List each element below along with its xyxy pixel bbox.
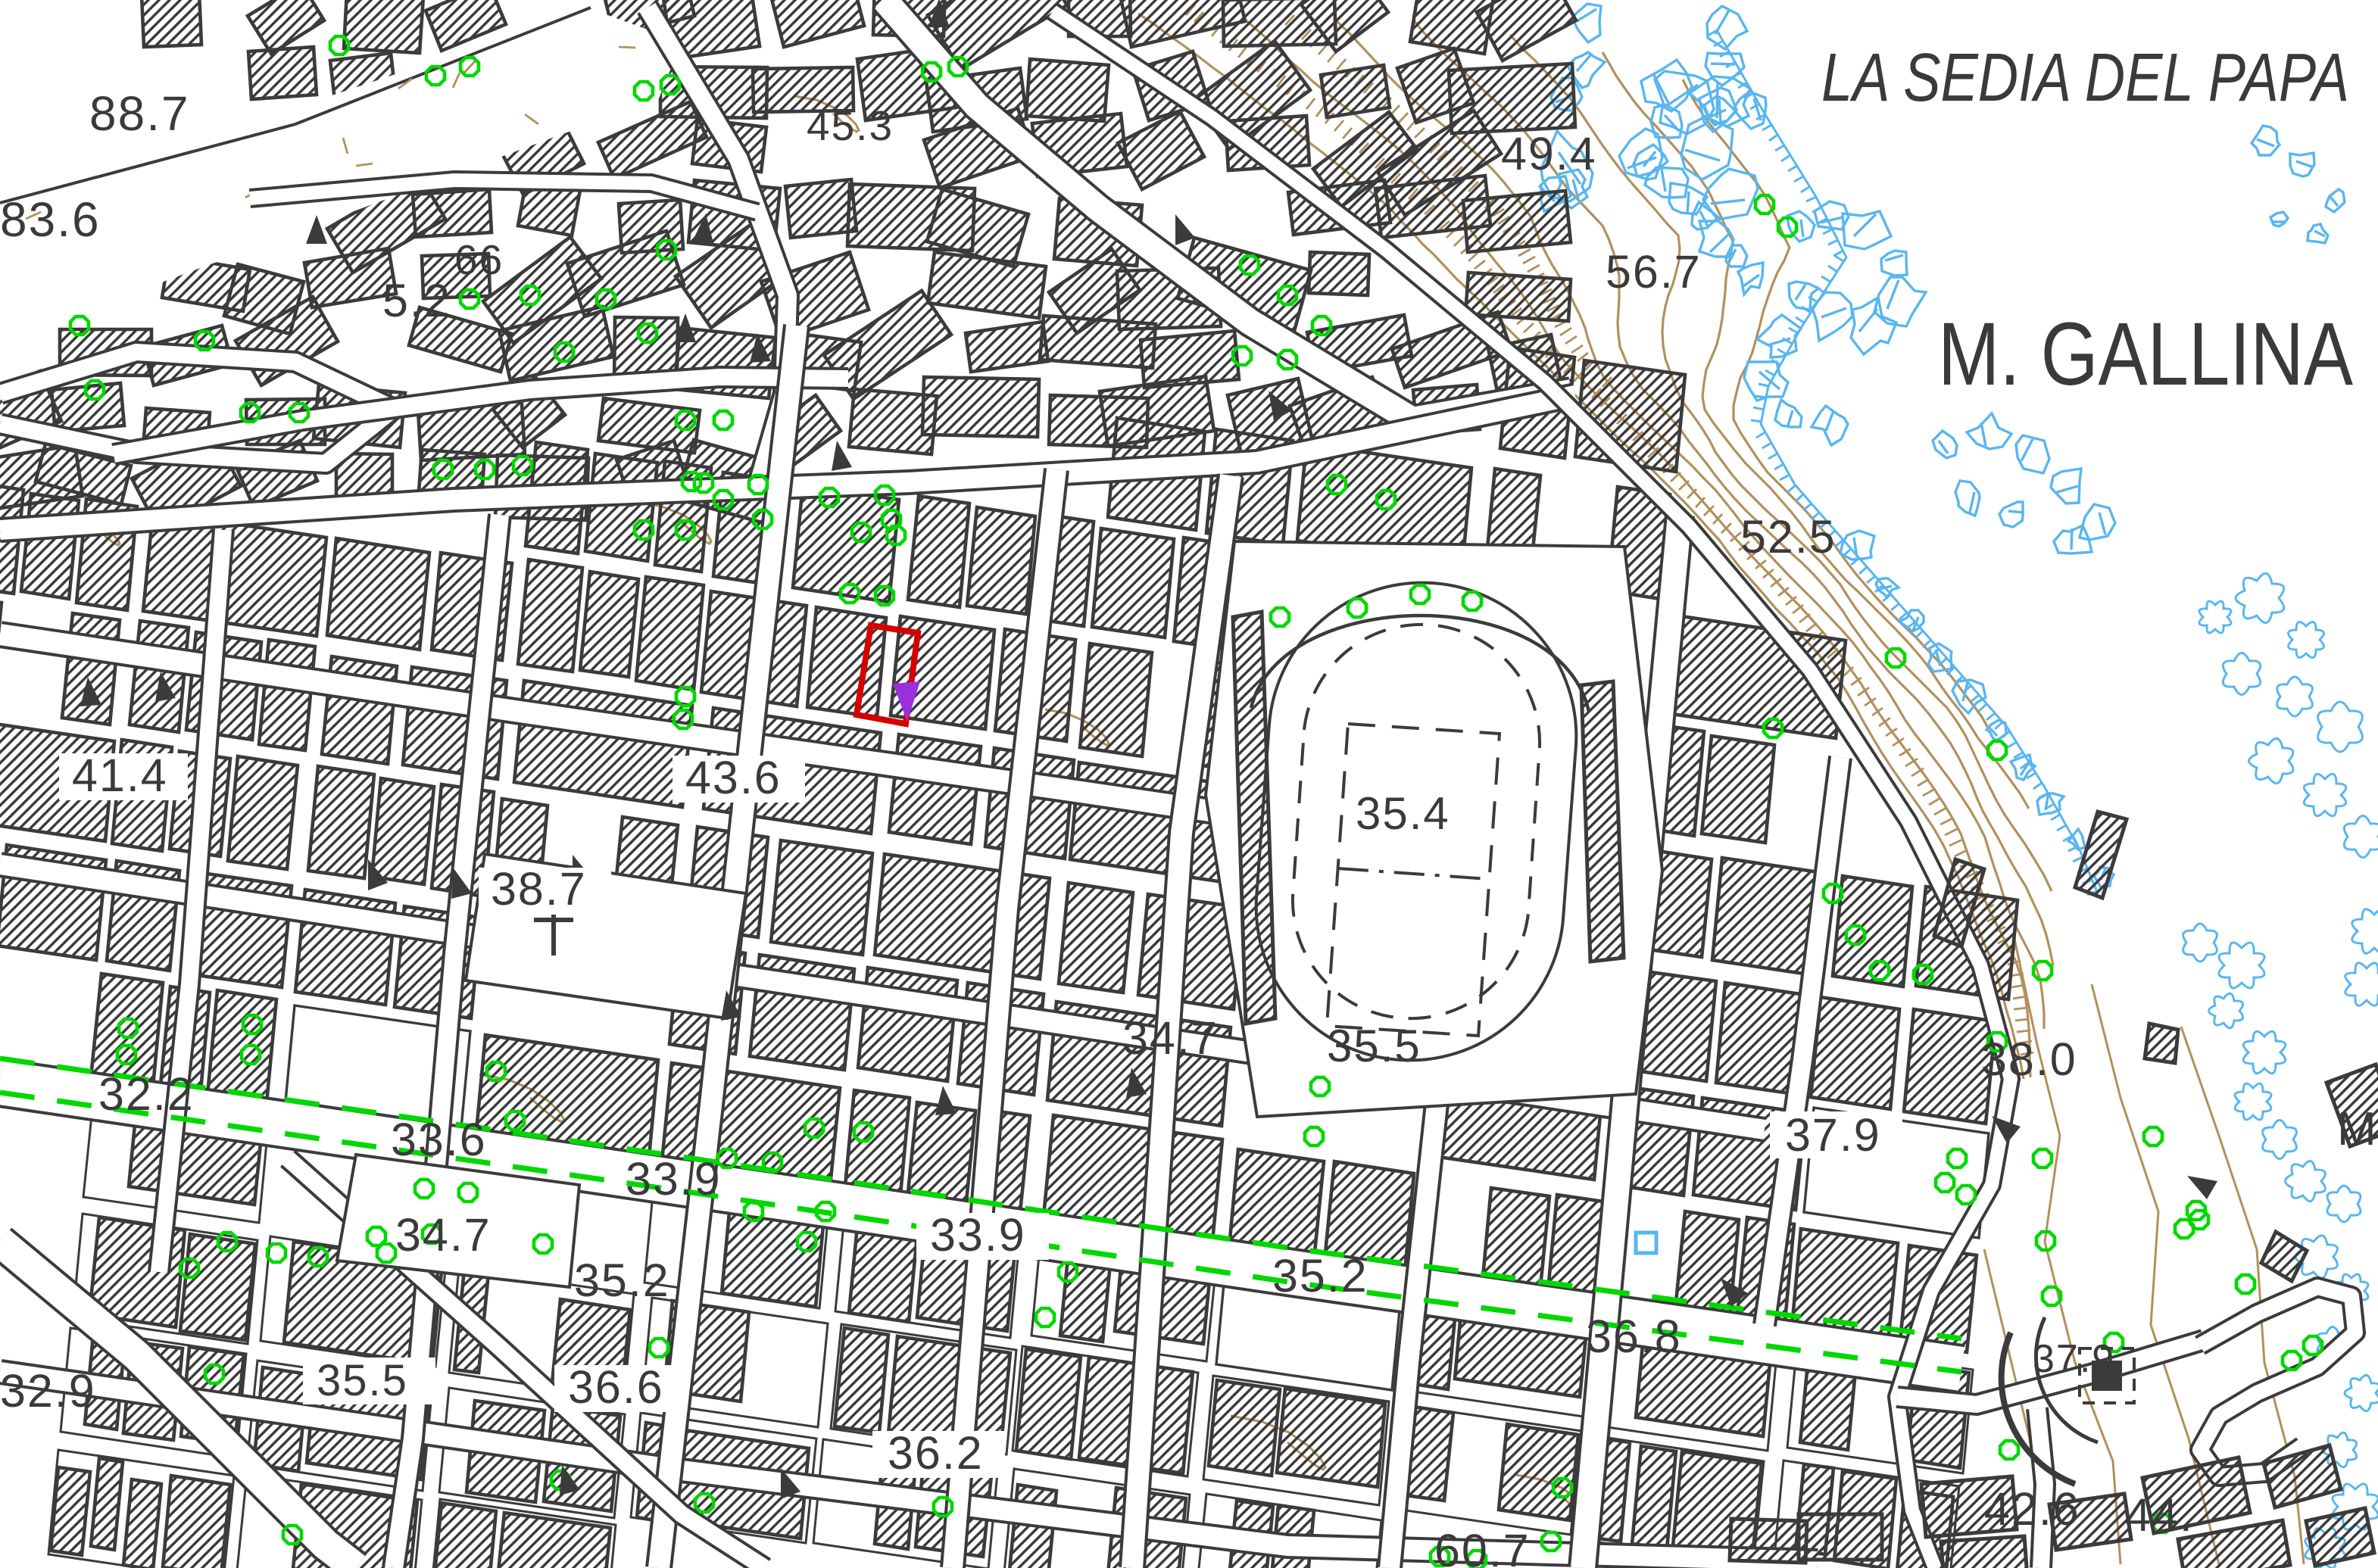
svg-text:83.6: 83.6 <box>0 192 101 247</box>
svg-text:LA SEDIA DEL PAPA: LA SEDIA DEL PAPA <box>1821 40 2349 116</box>
svg-text:56.7: 56.7 <box>1606 246 1702 298</box>
svg-text:37.9: 37.9 <box>2033 1337 2115 1381</box>
svg-text:41.4: 41.4 <box>72 750 168 801</box>
svg-text:45.3: 45.3 <box>807 102 894 149</box>
svg-text:36.2: 36.2 <box>888 1427 984 1479</box>
svg-text:35.5: 35.5 <box>317 1356 408 1405</box>
svg-text:38.7: 38.7 <box>491 863 587 915</box>
svg-text:35.4: 35.4 <box>1356 788 1450 839</box>
svg-text:M. GALLINA: M. GALLINA <box>1938 304 2353 404</box>
svg-text:66: 66 <box>454 236 504 283</box>
svg-text:32.9: 32.9 <box>0 1365 96 1417</box>
svg-text:88.7: 88.7 <box>89 86 190 141</box>
svg-text:37.9: 37.9 <box>1785 1109 1881 1161</box>
svg-text:52.5: 52.5 <box>1740 511 1837 563</box>
svg-text:35.5: 35.5 <box>1327 1021 1421 1071</box>
svg-text:36.8: 36.8 <box>1586 1311 1682 1362</box>
svg-text:44.: 44. <box>2125 1489 2194 1541</box>
svg-text:32.2: 32.2 <box>98 1068 195 1120</box>
svg-text:5.2: 5.2 <box>382 275 451 326</box>
svg-text:M: M <box>2337 1103 2378 1155</box>
svg-text:42.6: 42.6 <box>1984 1483 2080 1535</box>
svg-text:60.7: 60.7 <box>1434 1525 1531 1568</box>
svg-text:34.7: 34.7 <box>395 1209 492 1261</box>
svg-text:49.4: 49.4 <box>1501 128 1597 179</box>
svg-text:33.9: 33.9 <box>626 1153 722 1205</box>
svg-text:43.6: 43.6 <box>685 752 782 803</box>
svg-text:33.9: 33.9 <box>930 1209 1026 1261</box>
svg-text:35.2: 35.2 <box>574 1255 670 1306</box>
svg-text:34.7: 34.7 <box>1122 1012 1219 1064</box>
svg-text:38.0: 38.0 <box>1981 1033 2077 1085</box>
svg-text:33.6: 33.6 <box>391 1114 487 1165</box>
svg-text:36.6: 36.6 <box>568 1361 664 1413</box>
svg-text:35.2: 35.2 <box>1272 1250 1368 1301</box>
